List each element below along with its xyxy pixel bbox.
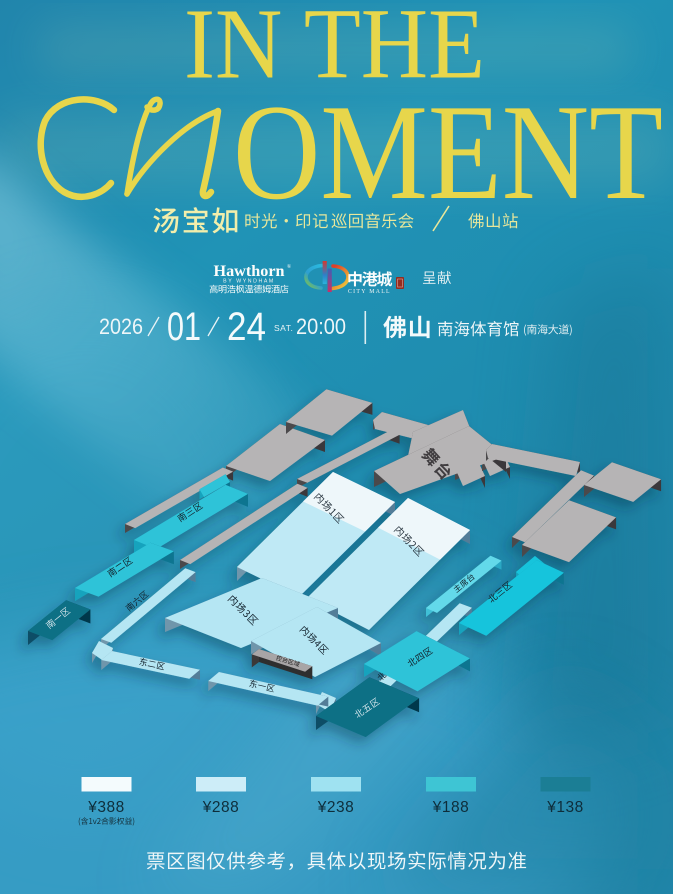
- svg-text:¥288: ¥288: [202, 799, 239, 816]
- svg-text:¥388: ¥388: [87, 799, 124, 816]
- svg-text:BY WYNDHAM: BY WYNDHAM: [223, 279, 275, 285]
- svg-text:01: 01: [167, 305, 201, 349]
- svg-text:Hawthorn: Hawthorn: [214, 263, 285, 280]
- svg-text:CITY MALL: CITY MALL: [348, 289, 391, 295]
- svg-text:¥138: ¥138: [546, 799, 583, 816]
- svg-text:24: 24: [227, 305, 266, 349]
- svg-text:¥238: ¥238: [317, 799, 354, 816]
- svg-text:SAT.: SAT.: [274, 323, 293, 333]
- svg-text:20:00: 20:00: [296, 314, 346, 339]
- svg-text:OMENT: OMENT: [233, 77, 663, 228]
- svg-text:¥188: ¥188: [432, 799, 469, 816]
- svg-text:2026: 2026: [99, 314, 143, 339]
- svg-text:®: ®: [287, 263, 291, 270]
